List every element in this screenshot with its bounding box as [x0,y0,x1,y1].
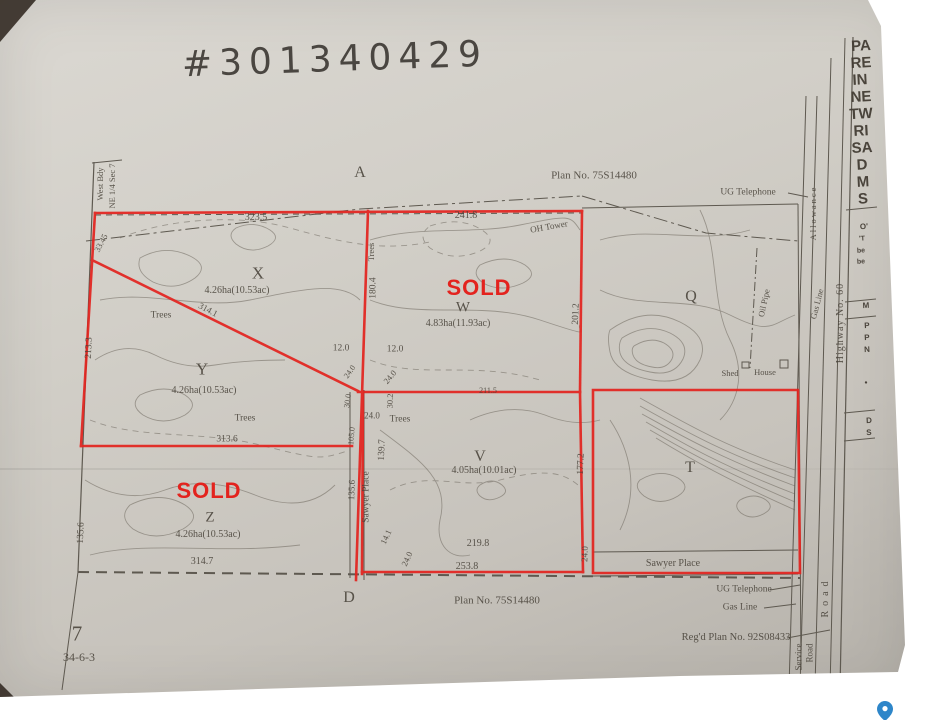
plan-number-top: Plan No. 75S14480 [551,171,637,182]
titleblock-line-4: NE [850,89,872,105]
dim-12-0-a: 12.0 [333,344,350,354]
screenshot-canvas: #301340429APlan No. 75S14480UG Telephone… [0,0,931,720]
dim-139-7: 139.7 [378,439,388,461]
shed-label: Shed [722,369,739,378]
parcel-w-area: 4.83ha(11.93ac) [426,319,491,329]
west-bdy-sec-label: NE 1/4 Sec 7 [108,163,117,208]
dim-12-0-b: 12.0 [387,345,404,355]
dim-30-2: 30.2 [385,393,394,408]
parcel-y-label: Y [196,361,208,378]
location-pin-icon[interactable] [877,701,893,720]
parcel-x-area: 4.26ha(10.53ac) [205,286,270,296]
dim-323-5: 323.5 [245,213,268,223]
dim-241-8: 241.8 [455,211,478,221]
trees-label-vertical: Trees [367,243,376,262]
dim-314-7: 314.7 [191,557,214,567]
titleblock-line-6: RI [853,123,869,139]
dim-201-2: 201.2 [572,303,582,325]
dim-135-6-a: 135.6 [347,480,357,501]
titleblock-line-5: TW [849,106,873,122]
dim-213-3: 213.3 [85,337,95,359]
dim-24-0-e: 24.0 [580,546,590,562]
road-sawyer-place-vertical: Sawyer Place [362,471,372,522]
corner-label-d: D [343,590,355,606]
dim-253-8: 253.8 [456,562,479,572]
titleblock-line-2: RE [850,55,872,71]
west-bdy-label: West Bdy [96,167,105,200]
titleblock-line-9: M [856,174,869,190]
parcel-w-label: W [456,301,470,316]
survey-plan-photo: #301340429APlan No. 75S14480UG Telephone… [0,0,905,697]
titleblock-line-7: SA [851,140,873,156]
titleblock-frag-11: S [866,429,872,437]
titleblock-frag-3: be [857,247,866,254]
dim-211-5: 211.5 [479,387,497,395]
parcel-t-label: T [685,460,695,476]
gas-line-bottom: Gas Line [723,603,758,613]
ug-telephone-top: UG Telephone [720,188,775,198]
parcel-q-label: Q [685,289,697,305]
regd-plan-number: Reg'd Plan No. 92S08433 [682,633,791,644]
titleblock-frag-6: P [864,322,870,330]
trees-label-v: Trees [390,415,411,425]
trees-label-x: Trees [151,311,172,321]
titleblock-frag-1: O' [860,223,869,231]
ug-telephone-bottom: UG Telephone [716,585,771,595]
section-number: 7 [72,624,83,645]
service-road-label-2: Road [806,644,815,663]
parcel-z-label: Z [205,511,214,526]
parcel-v-label: V [474,449,486,465]
dim-219-8: 219.8 [467,539,490,549]
parcel-y-area: 4.26ha(10.53ac) [172,386,237,396]
titleblock-line-1: PA [851,38,871,54]
titleblock-frag-4: be [857,258,866,265]
contour-lines [85,210,795,556]
corner-label-a: A [354,165,366,181]
titleblock-frag-9: • [864,379,867,387]
road-vertical-label: Road [821,576,831,617]
titleblock-frag-8: N [864,346,870,354]
titleblock-frag-5: M [862,302,869,310]
plan-number-bottom: Plan No. 75S14480 [454,596,540,607]
highway-60-label: Highway No. 60 [836,283,846,363]
dim-180-4: 180.4 [369,277,379,298]
dim-313-6: 313.6 [216,435,237,445]
parcel-v-area: 4.05ha(10.01ac) [452,466,517,476]
parcel-z-area: 4.26ha(10.53ac) [176,530,241,540]
township-label: 34-6-3 [63,651,95,663]
trees-label-y: Trees [235,414,256,424]
parcel-x-label: X [252,265,264,282]
titleblock-frag-7: P [864,334,870,342]
dim-177-2: 177.2 [577,453,587,475]
sold-stamp-w: SOLD [446,277,511,299]
dim-135-6-b: 135.6 [77,522,87,544]
dim-24-0-c: 24.0 [364,412,380,421]
dim-105-0: 105.0 [347,427,357,446]
service-road-label-1: Service [795,644,804,671]
titleblock-line-10: S [858,191,869,207]
sold-stamp-z: SOLD [176,480,241,502]
titleblock-frag-10: D [866,417,872,425]
road-sawyer-place-horizontal: Sawyer Place [646,559,700,569]
titleblock-frag-2: 'T [859,235,865,242]
titleblock-line-3: IN [852,72,868,88]
allowance-label: Allowance [809,186,818,241]
house-label: House [754,368,776,377]
titleblock-line-8: D [856,157,868,173]
